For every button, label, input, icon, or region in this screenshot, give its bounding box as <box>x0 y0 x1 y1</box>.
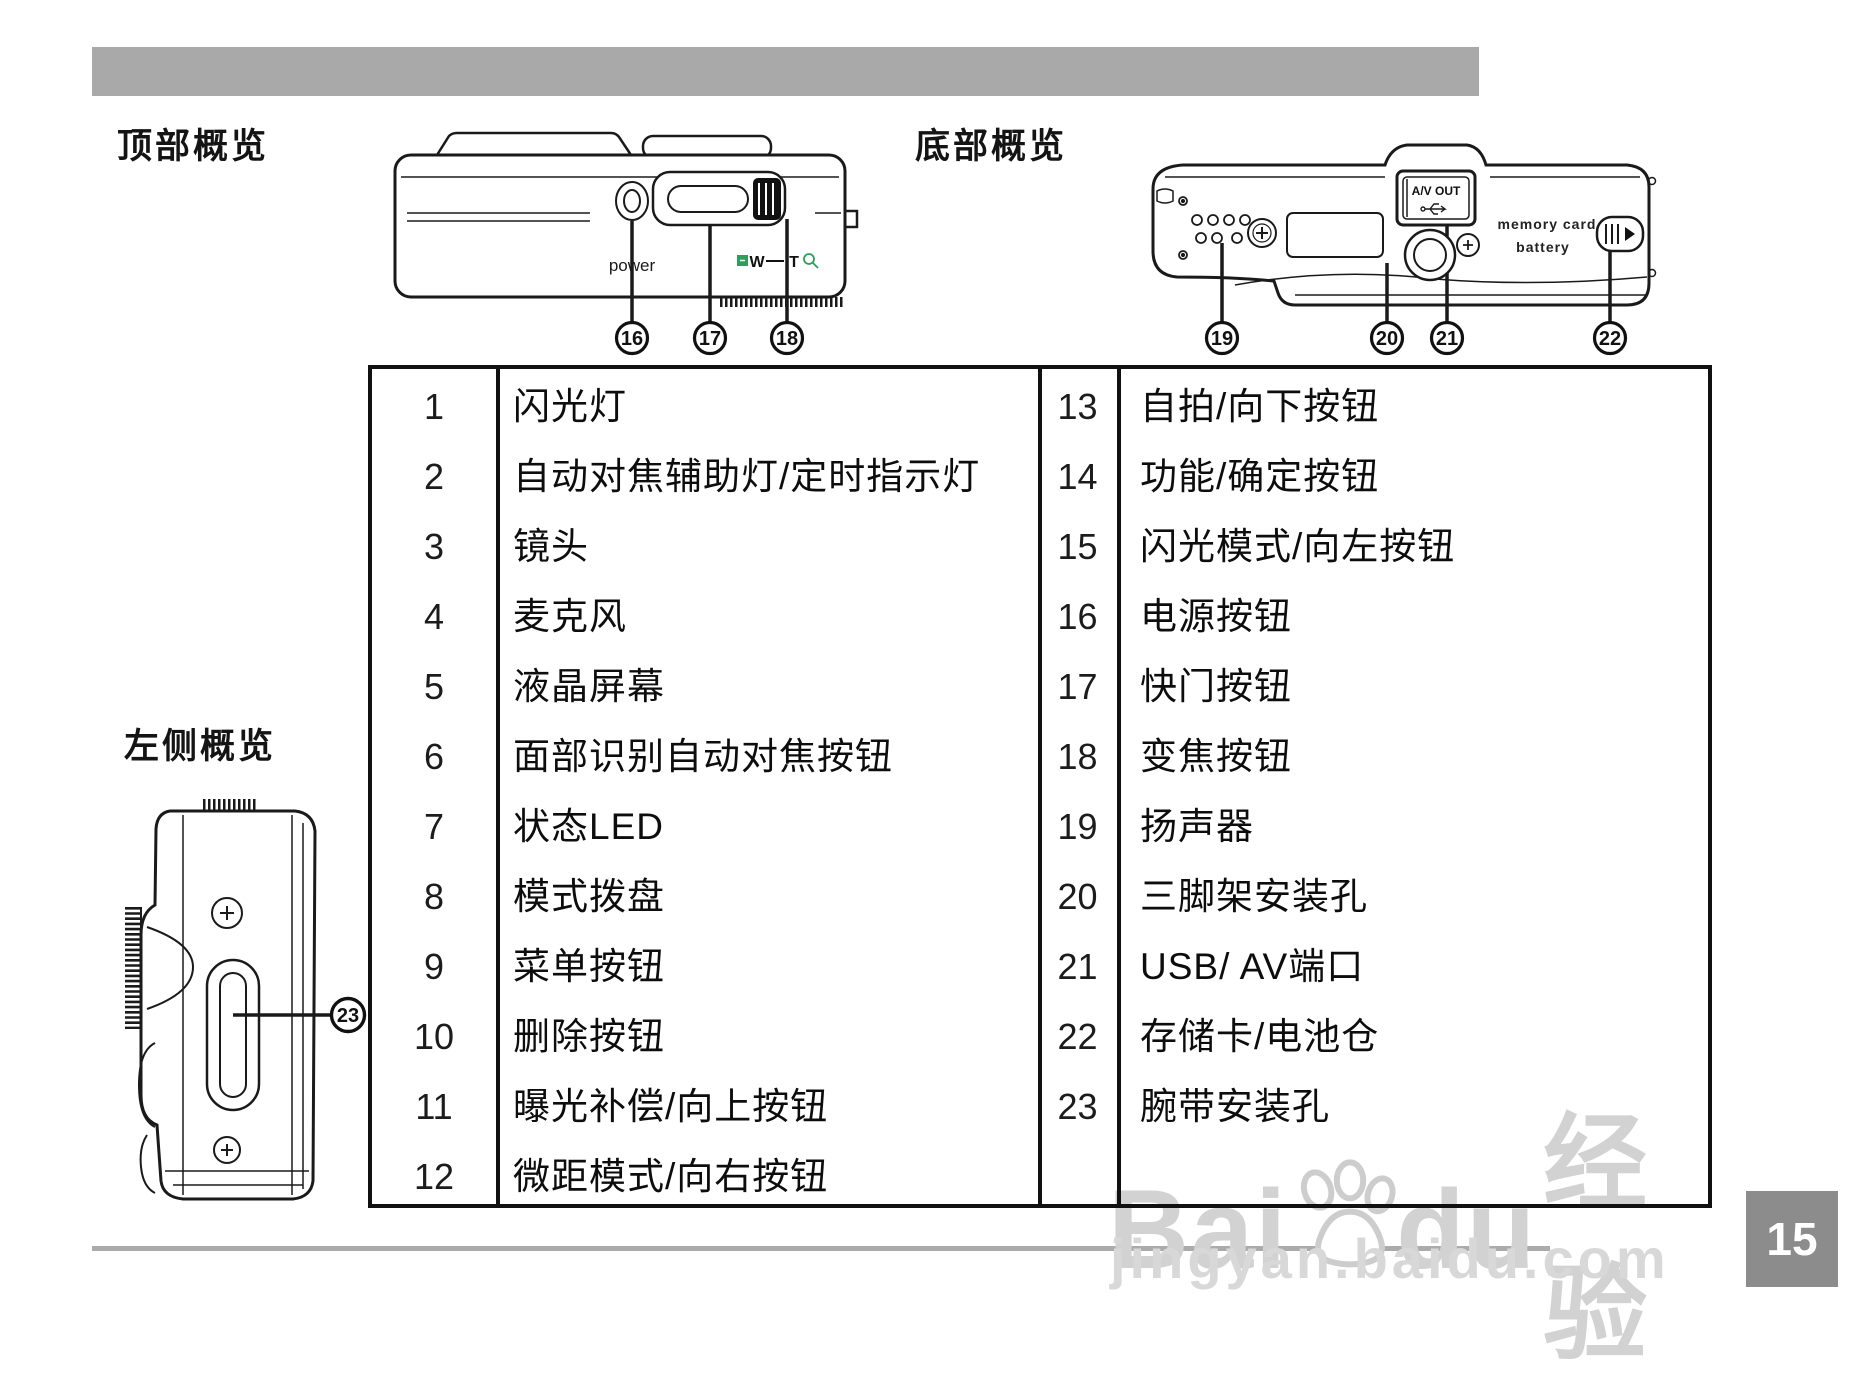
manual-page: { "sections": { "top_overview": "顶部概览", … <box>0 0 1871 1361</box>
part-name: 扬声器 <box>1140 806 1254 848</box>
camera-bottom-view-diagram: A/V OUT memory card battery 19 20 21 22 <box>1135 125 1665 360</box>
table-divider <box>1117 369 1121 1204</box>
part-number: 4 <box>372 596 496 638</box>
section-title-top-overview: 顶部概览 <box>117 118 269 169</box>
watermark-url: jingyan.baidu.com <box>1110 1226 1670 1291</box>
callout-19: 19 <box>1207 323 1238 354</box>
svg-text:20: 20 <box>1376 328 1398 350</box>
part-name: 自动对焦辅助灯/定时指示灯 <box>513 456 980 498</box>
parts-table: 1闪光灯 2自动对焦辅助灯/定时指示灯 3镜头 4麦克风 5液晶屏幕 6面部识别… <box>368 365 1712 1208</box>
part-name: 三脚架安装孔 <box>1140 876 1368 918</box>
part-name: 麦克风 <box>513 596 627 638</box>
av-out-label: A/V OUT <box>1412 184 1461 198</box>
part-number: 9 <box>372 946 496 988</box>
callout-16: 16 <box>617 323 648 354</box>
part-name: 存储卡/电池仓 <box>1140 1016 1379 1058</box>
section-title-left-overview: 左侧概览 <box>124 718 276 769</box>
memory-card-label: memory card <box>1498 216 1597 232</box>
part-number: 19 <box>1038 806 1117 848</box>
table-divider <box>496 369 500 1204</box>
part-name: 自拍/向下按钮 <box>1140 386 1379 428</box>
svg-text:19: 19 <box>1211 328 1233 350</box>
svg-text:21: 21 <box>1436 328 1458 350</box>
part-number: 5 <box>372 666 496 708</box>
part-name: 删除按钮 <box>513 1016 665 1058</box>
part-number: 13 <box>1038 386 1117 428</box>
part-name: 镜头 <box>513 526 589 568</box>
svg-text:23: 23 <box>337 1005 359 1027</box>
part-number: 10 <box>372 1016 496 1058</box>
callout-17: 17 <box>695 323 726 354</box>
svg-text:18: 18 <box>776 328 798 350</box>
page-number: 15 <box>1766 1212 1817 1266</box>
battery-label: battery <box>1516 239 1570 255</box>
part-number: 23 <box>1038 1086 1117 1128</box>
part-name: 变焦按钮 <box>1140 736 1292 778</box>
part-name: 功能/确定按钮 <box>1140 456 1379 498</box>
part-name: 闪光模式/向左按钮 <box>1140 526 1455 568</box>
camera-top-view-diagram: power W T 16 17 18 <box>385 125 860 360</box>
part-name: 状态LED <box>513 806 664 848</box>
part-name: 闪光灯 <box>513 386 627 428</box>
part-name: 模式拨盘 <box>513 876 665 918</box>
callout-20: 20 <box>1372 323 1403 354</box>
part-number: 2 <box>372 456 496 498</box>
part-number: 12 <box>372 1156 496 1198</box>
part-name: USB/ AV端口 <box>1140 946 1364 988</box>
part-number: 15 <box>1038 526 1117 568</box>
camera-left-view-diagram: 23 <box>95 795 375 1225</box>
part-number: 14 <box>1038 456 1117 498</box>
part-name: 液晶屏幕 <box>513 666 665 708</box>
part-number: 16 <box>1038 596 1117 638</box>
zoom-tele-label: T <box>789 254 799 271</box>
part-name: 微距模式/向右按钮 <box>513 1156 828 1198</box>
section-title-bottom-overview: 底部概览 <box>915 118 1067 169</box>
svg-text:22: 22 <box>1599 328 1621 350</box>
part-number: 1 <box>372 386 496 428</box>
callout-22: 22 <box>1595 323 1626 354</box>
part-number: 21 <box>1038 946 1117 988</box>
header-bar <box>92 47 1479 96</box>
callout-18: 18 <box>772 323 803 354</box>
part-number: 7 <box>372 806 496 848</box>
zoom-wide-label: W <box>749 254 765 271</box>
part-name: 菜单按钮 <box>513 946 665 988</box>
page-number-box: 15 <box>1746 1191 1838 1287</box>
part-number: 22 <box>1038 1016 1117 1058</box>
part-number: 20 <box>1038 876 1117 918</box>
callout-23: 23 <box>332 999 365 1032</box>
part-number: 18 <box>1038 736 1117 778</box>
part-name: 电源按钮 <box>1140 596 1292 638</box>
part-name: 面部识别自动对焦按钮 <box>513 736 893 778</box>
part-number: 17 <box>1038 666 1117 708</box>
part-number: 8 <box>372 876 496 918</box>
part-name: 快门按钮 <box>1140 666 1292 708</box>
svg-text:17: 17 <box>699 328 721 350</box>
part-name: 腕带安装孔 <box>1140 1086 1330 1128</box>
power-label: power <box>609 256 656 275</box>
part-number: 11 <box>372 1086 496 1128</box>
part-number: 3 <box>372 526 496 568</box>
part-number: 6 <box>372 736 496 778</box>
callout-21: 21 <box>1432 323 1463 354</box>
svg-text:16: 16 <box>621 328 643 350</box>
part-name: 曝光补偿/向上按钮 <box>513 1086 828 1128</box>
